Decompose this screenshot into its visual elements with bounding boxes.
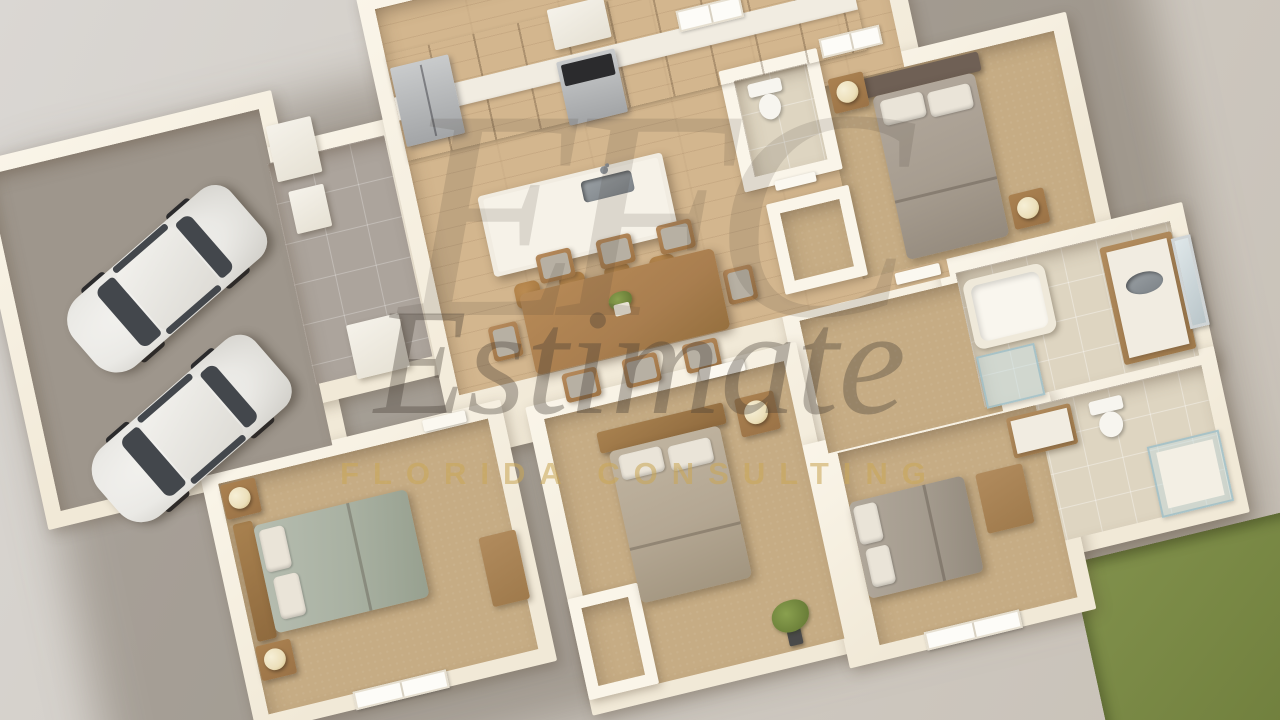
floor-plan-render: EFC Estimate FLORIDA CONSULTING	[0, 0, 1280, 720]
